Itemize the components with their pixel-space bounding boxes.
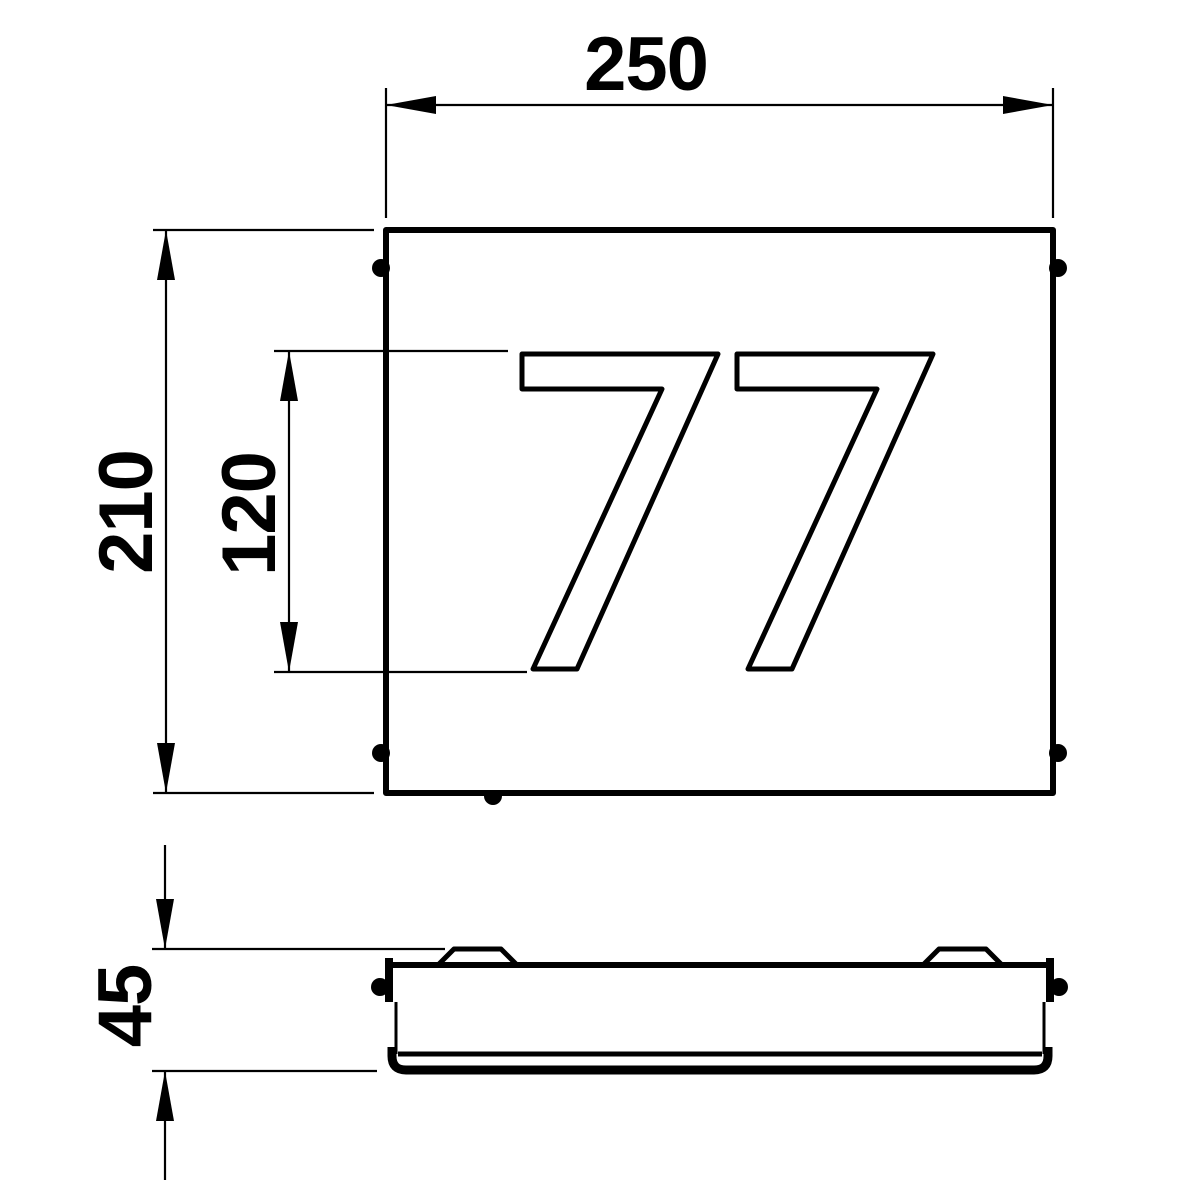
mounting-pan-outline xyxy=(392,1047,1048,1070)
arrowhead-bottom xyxy=(157,743,175,793)
drawing-canvas: 250 210 120 xyxy=(0,0,1200,1200)
front-view xyxy=(372,230,1067,805)
arrowhead-down xyxy=(156,899,174,949)
clip-bump-left-top xyxy=(372,259,390,277)
clip-bump-bottom xyxy=(484,796,502,805)
arrowhead-bottom xyxy=(280,622,298,672)
dimension-width: 250 xyxy=(386,22,1053,218)
clip-bump-right-top xyxy=(1049,259,1067,277)
clip-bump-right-bottom xyxy=(1049,744,1067,762)
dimension-width-label: 250 xyxy=(584,22,708,107)
dimension-depth: 45 xyxy=(83,845,445,1180)
clip-bump-left-bottom xyxy=(372,744,390,762)
arrowhead-right xyxy=(1003,96,1053,114)
arrowhead-top xyxy=(157,230,175,280)
technical-drawing: 250 210 120 xyxy=(0,0,1200,1200)
dimension-height-label: 210 xyxy=(84,450,169,574)
arrowhead-up xyxy=(156,1071,174,1121)
dimension-digit-height-label: 120 xyxy=(207,452,292,576)
dimension-depth-label: 45 xyxy=(83,965,168,1048)
side-view xyxy=(371,949,1068,1070)
arrowhead-left xyxy=(386,96,436,114)
arrowhead-top xyxy=(280,351,298,401)
sign-plate-outline xyxy=(386,230,1053,793)
